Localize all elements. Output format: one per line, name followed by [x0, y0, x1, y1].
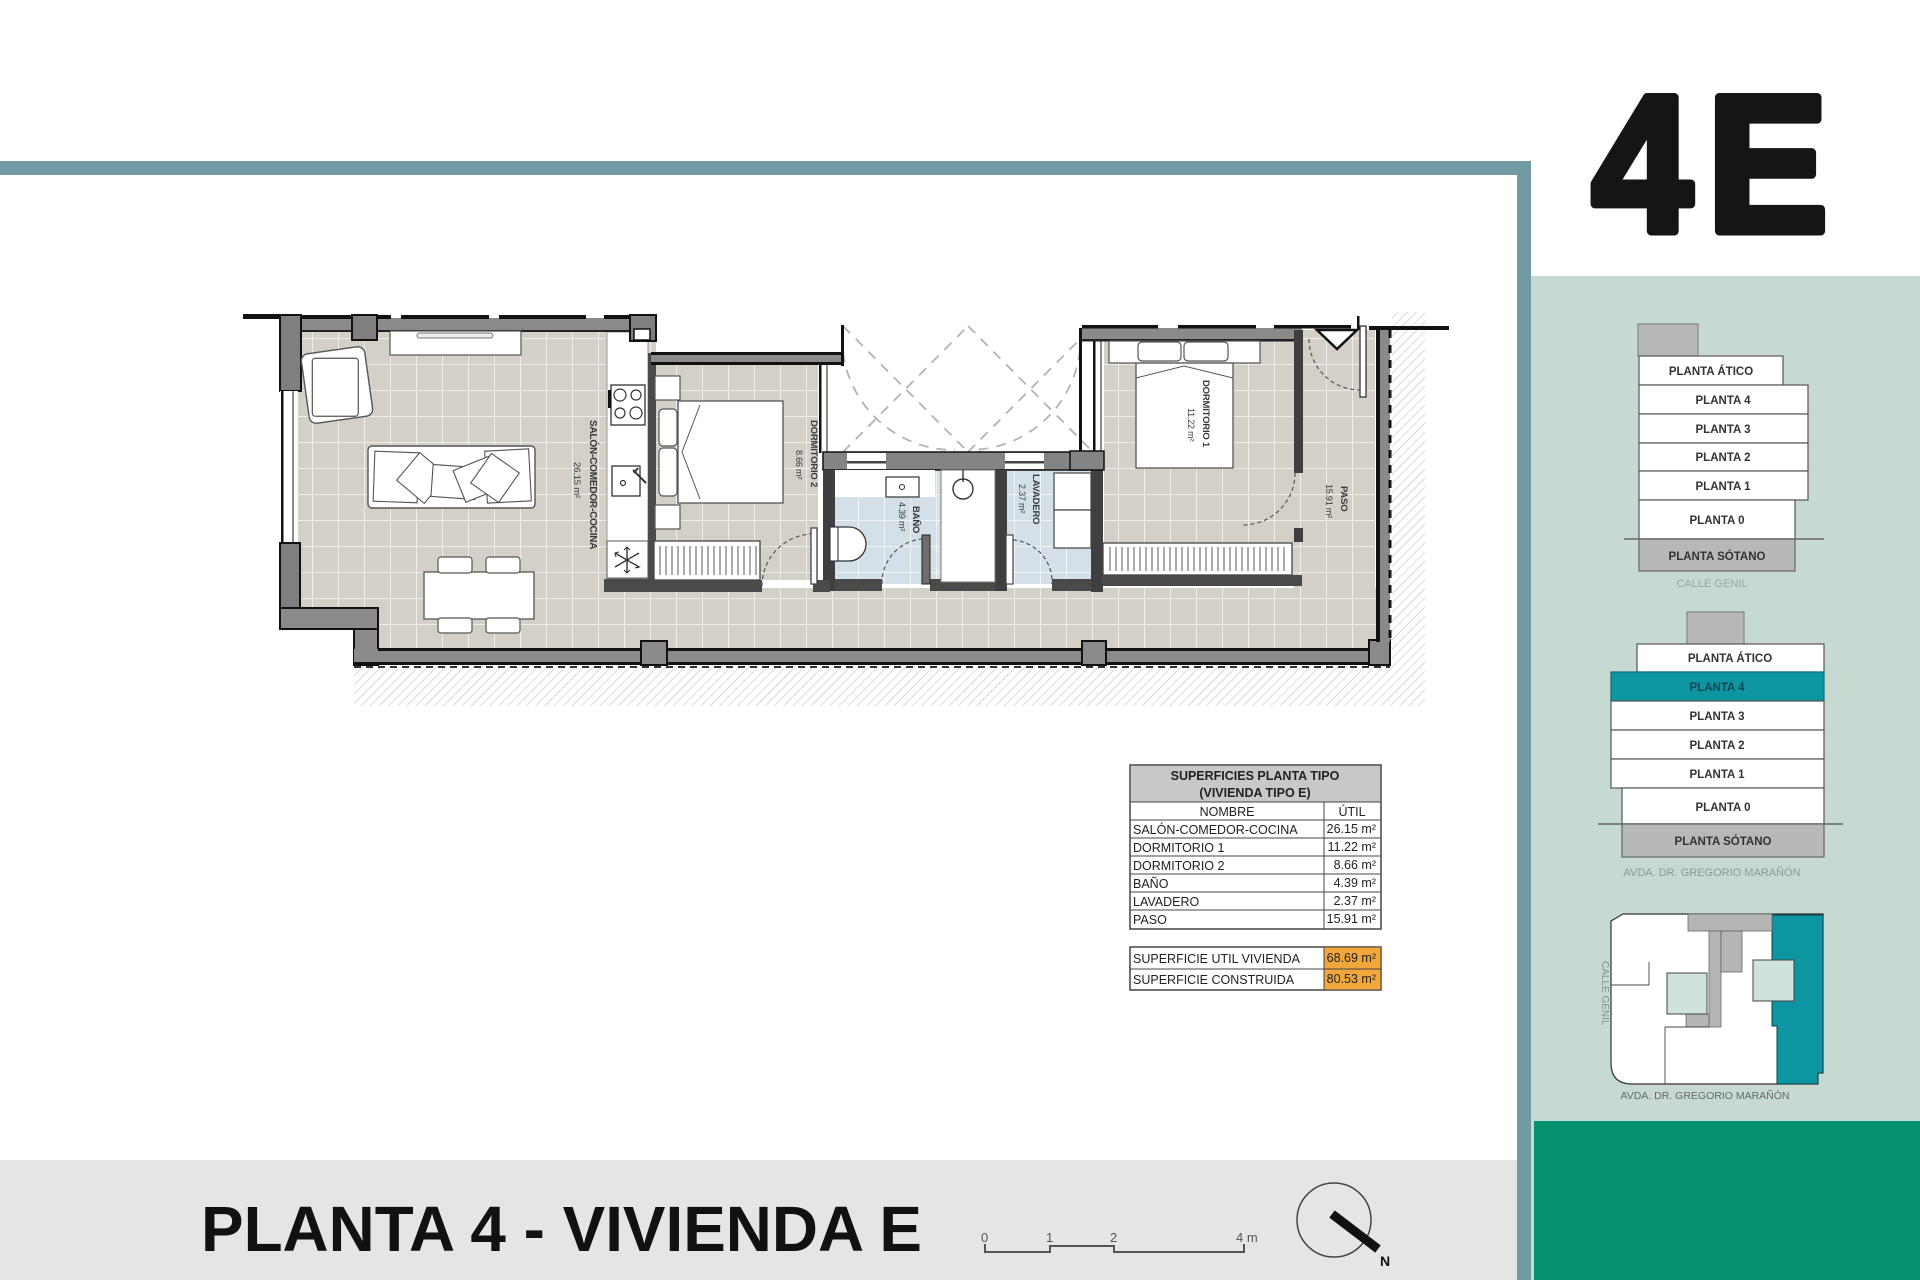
svg-text:N: N: [1380, 1253, 1390, 1269]
svg-text:NOMBRE: NOMBRE: [1200, 805, 1255, 819]
svg-text:PLANTA 3: PLANTA 3: [1696, 424, 1751, 436]
svg-text:PLANTA 0: PLANTA 0: [1696, 802, 1751, 814]
svg-text:SUPERFICIES PLANTA TIPO: SUPERFICIES PLANTA TIPO: [1171, 769, 1340, 783]
svg-text:4: 4: [1592, 56, 1692, 273]
svg-text:26.15 m²: 26.15 m²: [1327, 822, 1376, 836]
svg-text:4.39 m²: 4.39 m²: [1334, 876, 1376, 890]
svg-text:AVDA. DR. GREGORIO MARAÑÓN: AVDA. DR. GREGORIO MARAÑÓN: [1621, 1089, 1790, 1102]
svg-text:AVDA. DR. GREGORIO MARAÑÓN: AVDA. DR. GREGORIO MARAÑÓN: [1623, 866, 1800, 879]
svg-text:PLANTA 1: PLANTA 1: [1696, 481, 1752, 493]
svg-text:PLANTA SÓTANO: PLANTA SÓTANO: [1675, 835, 1772, 848]
svg-text:PLANTA 2: PLANTA 2: [1696, 452, 1751, 464]
svg-text:PLANTA 1: PLANTA 1: [1690, 769, 1746, 781]
svg-text:(VIVIENDA TIPO E): (VIVIENDA TIPO E): [1199, 786, 1310, 800]
svg-text:11.22 m²: 11.22 m²: [1328, 840, 1376, 854]
svg-text:PASO: PASO: [1133, 913, 1167, 927]
svg-text:BAÑO: BAÑO: [1133, 877, 1169, 891]
svg-text:PLANTA 4: PLANTA 4: [1696, 395, 1752, 407]
svg-text:PLANTA 4: PLANTA 4: [1690, 682, 1746, 694]
svg-text:CALLE GENIL: CALLE GENIL: [1677, 578, 1748, 590]
svg-text:PLANTA 3: PLANTA 3: [1690, 711, 1745, 723]
svg-text:15.91 m²: 15.91 m²: [1327, 912, 1376, 926]
svg-text:80.53 m²: 80.53 m²: [1327, 972, 1376, 986]
svg-text:PLANTA ÁTICO: PLANTA ÁTICO: [1669, 365, 1753, 378]
svg-text:E: E: [1707, 56, 1828, 273]
svg-text:DORMITORIO 2: DORMITORIO 2: [1133, 859, 1224, 873]
svg-text:SUPERFICIE CONSTRUIDA: SUPERFICIE CONSTRUIDA: [1133, 973, 1295, 987]
svg-text:LAVADERO: LAVADERO: [1133, 895, 1200, 909]
svg-text:68.69 m²: 68.69 m²: [1327, 951, 1376, 965]
svg-text:PLANTA 0: PLANTA 0: [1690, 515, 1745, 527]
svg-text:SALÓN-COMEDOR-COCINA: SALÓN-COMEDOR-COCINA: [1133, 822, 1298, 837]
svg-text:PLANTA SÓTANO: PLANTA SÓTANO: [1669, 550, 1766, 563]
svg-text:4 m: 4 m: [1236, 1230, 1258, 1245]
svg-text:8.66 m²: 8.66 m²: [1334, 858, 1376, 872]
svg-text:CALLE GENIL: CALLE GENIL: [1599, 961, 1610, 1026]
svg-text:2: 2: [1110, 1230, 1117, 1245]
svg-text:2.37 m²: 2.37 m²: [1334, 894, 1376, 908]
svg-text:PLANTA 2: PLANTA 2: [1690, 740, 1745, 752]
svg-text:0: 0: [981, 1230, 988, 1245]
svg-text:1: 1: [1046, 1230, 1053, 1245]
svg-text:SUPERFICIE UTIL VIVIENDA: SUPERFICIE UTIL VIVIENDA: [1133, 952, 1301, 966]
svg-text:DORMITORIO 1: DORMITORIO 1: [1133, 841, 1224, 855]
svg-text:ÚTIL: ÚTIL: [1338, 804, 1365, 819]
svg-text:PLANTA 4 - VIVIENDA E: PLANTA 4 - VIVIENDA E: [201, 1193, 922, 1265]
svg-text:PLANTA ÁTICO: PLANTA ÁTICO: [1688, 652, 1772, 665]
